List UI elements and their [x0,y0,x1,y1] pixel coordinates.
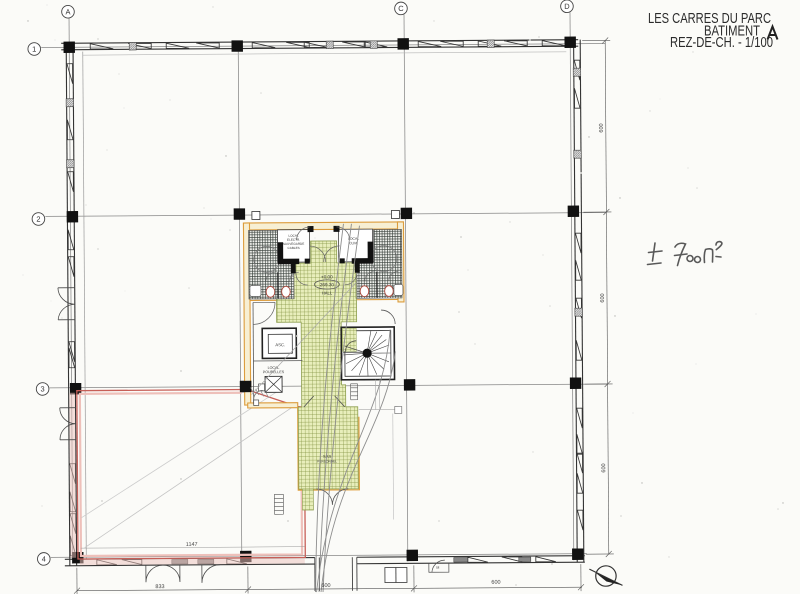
svg-text:SAS: SAS [323,454,332,459]
svg-text:600: 600 [491,580,500,586]
svg-text:C: C [398,4,404,13]
svg-text:HALL: HALL [322,290,333,295]
svg-text:269.30: 269.30 [320,282,335,287]
svg-text:600: 600 [321,583,330,589]
svg-text:1: 1 [32,45,36,54]
svg-text:M: M [436,566,439,570]
svg-text:2: 2 [36,215,40,224]
svg-text:3: 3 [40,385,44,394]
svg-text:D: D [564,2,570,11]
svg-text:A: A [65,7,70,16]
svg-text:833: 833 [155,584,164,590]
svg-text:REZ-DE-CH. - 1/100: REZ-DE-CH. - 1/100 [670,35,773,51]
svg-text:ASC.: ASC. [275,342,285,347]
svg-text:1147: 1147 [186,542,198,548]
svg-text:4: 4 [42,555,46,564]
svg-text:600: 600 [601,463,607,472]
svg-text:+0.00: +0.00 [321,274,333,279]
svg-text:CABLES: CABLES [288,246,300,250]
svg-text:600: 600 [600,293,606,302]
svg-text:600: 600 [599,123,605,132]
